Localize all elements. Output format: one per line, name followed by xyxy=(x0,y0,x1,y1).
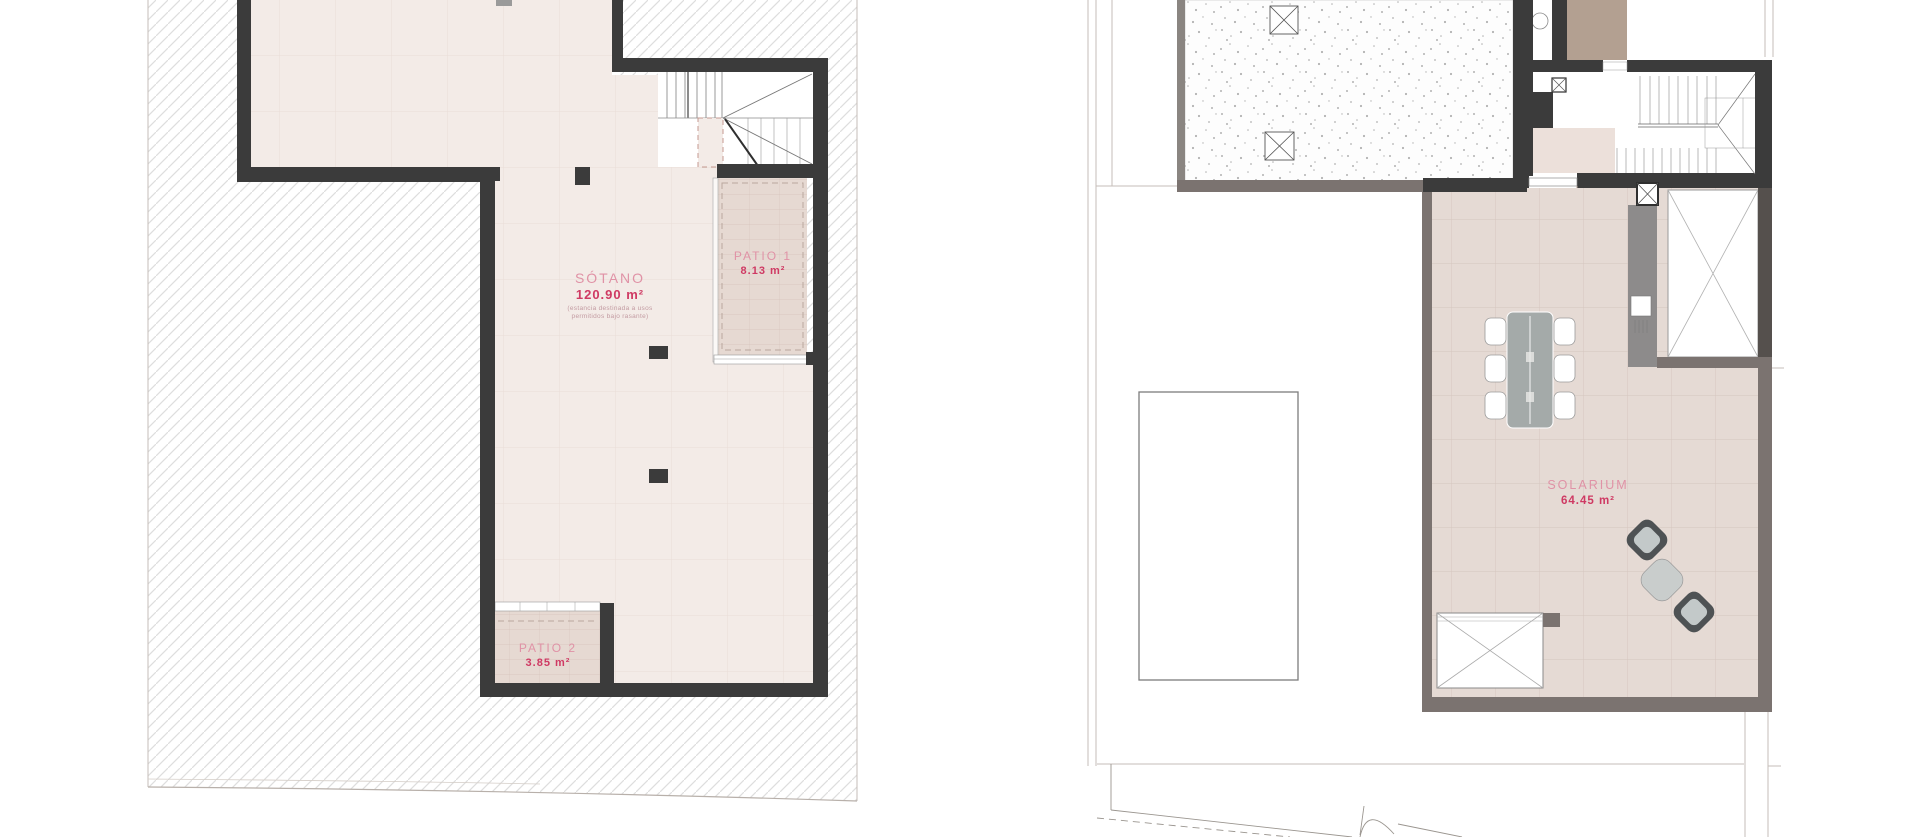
sotano-name: SÓTANO xyxy=(575,270,645,286)
stair-skylight-opening xyxy=(1668,190,1758,357)
dining-table xyxy=(1507,312,1553,428)
corner-skylight-box xyxy=(1437,613,1560,688)
sotano-note-line2: permitidos bajo rasante) xyxy=(572,313,649,320)
ac-unit xyxy=(1631,296,1651,316)
left-plan-basement: SÓTANO 120.90 m² (estancia destinada a u… xyxy=(148,0,857,801)
chimney-block xyxy=(1567,0,1627,60)
right-plan-solarium: SOLARIUM 64.45 m² xyxy=(1088,0,1784,837)
solarium-name: SOLARIUM xyxy=(1547,478,1628,492)
patio2-name: PATIO 2 xyxy=(519,641,577,655)
patio1-area: 8.13 m² xyxy=(741,265,786,277)
toilet-fixture xyxy=(1532,13,1548,29)
driveway-lines xyxy=(1097,764,1462,837)
door-threshold xyxy=(1603,62,1627,70)
basement-stairs xyxy=(658,72,815,167)
gravel-roof xyxy=(1177,0,1513,192)
patio1-name: PATIO 1 xyxy=(734,249,792,263)
pillar-x-box xyxy=(1637,183,1658,205)
floor-plan-drawing: SÓTANO 120.90 m² (estancia destinada a u… xyxy=(0,0,1920,837)
solarium-terrace xyxy=(1422,178,1772,712)
pool-outline xyxy=(1139,392,1298,680)
solarium-area: 64.45 m² xyxy=(1561,495,1615,507)
skylight-2 xyxy=(1265,132,1294,160)
patio2-area: 3.85 m² xyxy=(526,657,571,669)
sotano-area: 120.90 m² xyxy=(576,287,644,302)
shaft-box xyxy=(1552,78,1566,92)
sotano-note-line1: (estancia destinada a usos xyxy=(567,305,653,312)
floor-plan-sheet: SÓTANO 120.90 m² (estancia destinada a u… xyxy=(0,0,1920,837)
kitchen-wall-band xyxy=(1628,205,1657,367)
skylight-1 xyxy=(1270,6,1298,34)
